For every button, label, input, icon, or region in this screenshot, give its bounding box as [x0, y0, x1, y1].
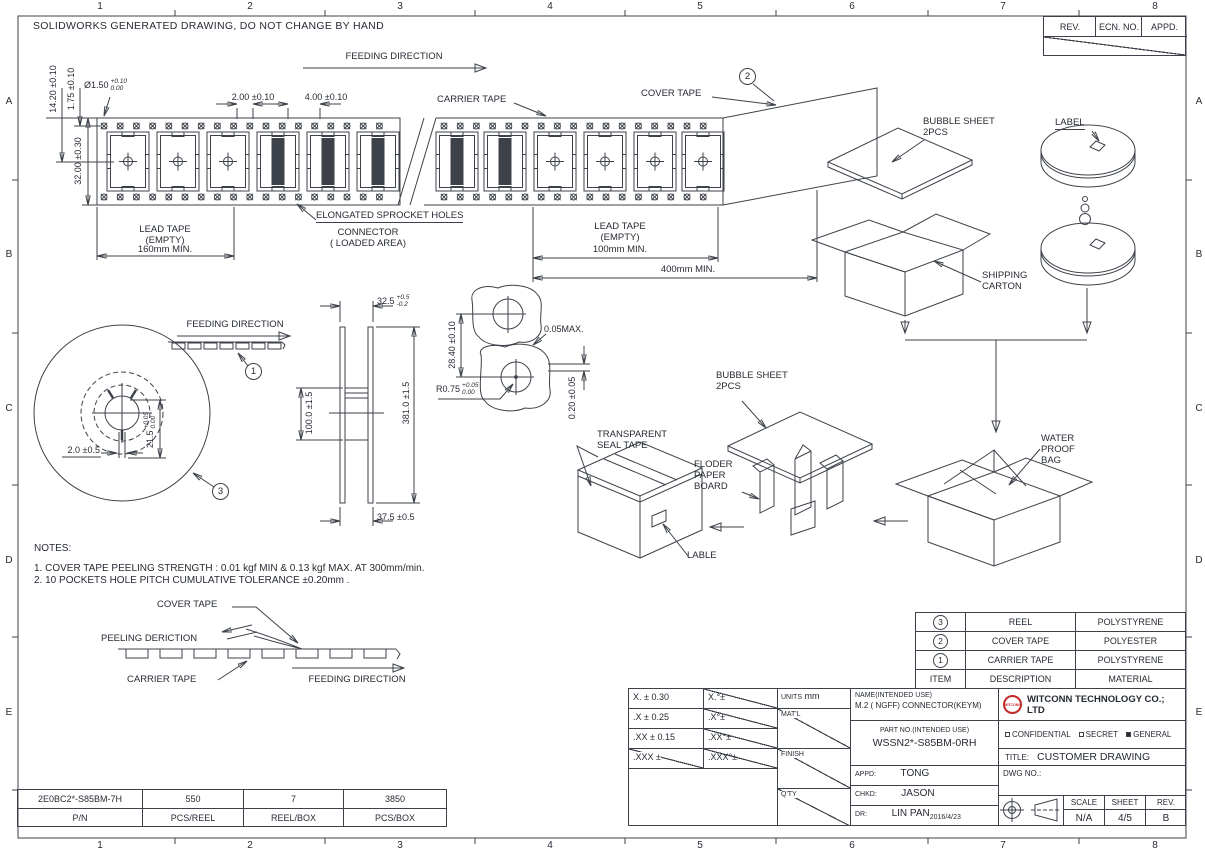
pcs-box-label: PCS/BOX: [344, 809, 446, 826]
floder-paper-board-label: FLODER PAPER BOARD: [694, 459, 733, 492]
grid-label: 2: [243, 1, 257, 12]
ecn-header: ECN. NO.: [1095, 17, 1142, 37]
note-1: 1. COVER TAPE PEELING STRENGTH : 0.01 kg…: [34, 563, 425, 574]
tol-row-lin: .XXX ±: [629, 749, 704, 769]
reel-label-label: LABEL: [1055, 117, 1085, 130]
dim-hub-main: 21.5: [145, 430, 155, 448]
dim-gap: 0.05MAX.: [544, 324, 584, 334]
note-2: 2. 10 POCKETS HOLE PITCH CUMULATIVE TOLE…: [34, 575, 350, 586]
sheet-label: SHEET: [1105, 796, 1146, 810]
confidential-option: CONFIDENTIAL: [1005, 730, 1071, 739]
grid-label: E: [2, 707, 16, 718]
shipping-carton-label: SHIPPING CARTON: [982, 270, 1027, 292]
tol-row-lin: .XX ± 0.15: [629, 729, 704, 749]
lead-right-min: 100mm MIN.: [565, 244, 675, 255]
grid-label: D: [2, 555, 16, 566]
dim-reel-width: 37.5 ±0.5: [377, 512, 414, 522]
grid-label: A: [1192, 96, 1205, 107]
grid-label: 7: [996, 840, 1010, 851]
appd-header: APPD.: [1141, 17, 1187, 37]
material-row-mat: POLYSTYRENE: [1076, 613, 1185, 632]
lead-tape-left-label: LEAD TAPE (EMPTY): [110, 224, 220, 246]
confidential-checkbox: [1005, 732, 1010, 737]
dim-hole-dia-main: Ø1.50: [84, 80, 109, 90]
lable-label: LABLE: [687, 550, 717, 561]
dim-slot: 2.0 ±0.5: [58, 445, 100, 455]
grid-label: 5: [693, 1, 707, 12]
dim-pocket-pitch: 4.00 ±0.10: [292, 92, 360, 102]
connector-loaded-area: CONNECTOR ( LOADED AREA): [313, 227, 423, 249]
matl-cell: MAT'L: [778, 709, 851, 749]
grid-label: C: [2, 403, 16, 414]
grid-label: C: [1192, 403, 1205, 414]
feeding-direction-reel: FEEDING DIRECTION: [170, 319, 300, 330]
grid-label: 6: [845, 840, 859, 851]
title-value: CUSTOMER DRAWING: [1037, 751, 1150, 763]
dim-reel-diameter: 381.0 ±1.5: [401, 368, 411, 438]
tol-row-lin: X. ± 0.30: [629, 689, 704, 709]
grid-label: 5: [693, 840, 707, 851]
tol-row-lin: .X ± 0.25: [629, 709, 704, 729]
material-header-item: ITEM: [916, 670, 966, 688]
grid-label: B: [1192, 249, 1205, 260]
title-block: X. ± 0.30 X.°± .X ± 0.25 .X°± .XX ± 0.15…: [628, 688, 1186, 826]
grid-label: 1: [93, 1, 107, 12]
company-cell: WITCONN WITCONN TECHNOLOGY CO.; LTD: [999, 689, 1186, 721]
name-cell: NAME(INTENDED USE) M.2 ( NGFF) CONNECTOR…: [851, 689, 999, 721]
dim-hub-tol: +0.050.00: [143, 412, 157, 428]
dwg-cell: DWG NO.:: [999, 766, 1186, 796]
grid-label: 1: [93, 840, 107, 851]
grid-label: B: [2, 249, 16, 260]
dim-hub-dia: 100.0 ±1.5: [304, 378, 314, 448]
pn-label: P/N: [18, 809, 143, 826]
feeding-direction-top: FEEDING DIRECTION: [324, 51, 464, 62]
dim-pocket-center: 14.20 ±0.10: [48, 54, 58, 124]
grid-label: 7: [996, 1, 1010, 12]
grid-label: 3: [393, 840, 407, 851]
drawing-sheet: SOLIDWORKS GENERATED DRAWING, DO NOT CHA…: [0, 0, 1205, 852]
grid-label: 4: [543, 1, 557, 12]
dr-cell: DR: LIN PAN2016/4/23: [851, 806, 999, 826]
pn-table: 2E0BC2*-S85BM-7H 550 7 3850 P/N PCS/REEL…: [17, 789, 447, 827]
dim-hole-dia-tol: +0.100.00: [111, 78, 127, 92]
title-cell: TITLE: CUSTOMER DRAWING: [999, 749, 1186, 766]
scale-value: N/A: [1064, 810, 1105, 826]
rev-label: REV.: [1146, 796, 1186, 810]
dim-hole-pitch: 2.00 ±0.10: [219, 92, 287, 102]
material-row-mat: POLYSTYRENE: [1076, 651, 1185, 670]
dim-radius: R0.75 +0.050.00: [436, 382, 478, 396]
peel-carrier-tape-label: CARRIER TAPE: [127, 674, 196, 685]
material-table: 3 REEL POLYSTYRENE 2 COVER TAPE POLYESTE…: [915, 612, 1186, 689]
tol-blank: [629, 769, 778, 826]
tol-row-ang: X.°±: [704, 689, 778, 709]
dim-flange-gap: 32.5 +0.5-0.2: [377, 294, 409, 308]
solidworks-note: SOLIDWORKS GENERATED DRAWING, DO NOT CHA…: [33, 21, 384, 32]
tol-row-ang: .X°±: [704, 709, 778, 729]
dim-flange-gap-tol: +0.5-0.2: [397, 294, 410, 308]
material-row-desc: REEL: [966, 613, 1076, 632]
secret-option: SECRET: [1079, 730, 1118, 739]
appd-cell: APPD: TONG: [851, 766, 999, 786]
dwg-label: DWG NO.:: [1003, 769, 1041, 778]
dim-tape-width: 32.00 ±0.30: [73, 126, 83, 196]
grid-label: D: [1192, 555, 1205, 566]
pcs-box-value: 3850: [344, 790, 446, 809]
dim-standoff: 0.20 ±0.05: [567, 363, 577, 433]
lead-left-min: 160mm MIN.: [110, 244, 220, 255]
rev-table: REV. ECN. NO. APPD.: [1043, 16, 1186, 56]
pn-value: 2E0BC2*-S85BM-7H: [18, 790, 143, 809]
pcs-reel-value: 550: [143, 790, 244, 809]
dr-value: LIN PAN: [892, 808, 930, 819]
units-cell: UNITS mm: [778, 689, 851, 709]
secret-checkbox: [1079, 732, 1084, 737]
tol-row-ang: .XXX°±: [704, 749, 778, 769]
reel-box-value: 7: [244, 790, 344, 809]
elongated-sprocket-holes-label: ELONGATED SPROCKET HOLES: [316, 210, 463, 223]
material-row-item: 1: [916, 651, 966, 670]
dr-date: 2016/4/23: [930, 814, 961, 821]
cover-tape-label: COVER TAPE: [641, 88, 701, 99]
feeding-direction-peel: FEEDING DIRECTION: [292, 674, 422, 685]
dim-hole-edge: 1.75 ±0.10: [66, 54, 76, 124]
balloon-tape: 1: [245, 363, 262, 380]
bubble-sheet-mid-label: BUBBLE SHEET 2PCS: [716, 370, 788, 392]
tol-row-ang: .XX°±: [704, 729, 778, 749]
grid-label: 8: [1148, 840, 1162, 851]
notes-title: NOTES:: [34, 543, 71, 554]
grid-label: 3: [393, 1, 407, 12]
water-proof-bag-label: WATER PROOF BAG: [1041, 433, 1075, 466]
material-row-desc: CARRIER TAPE: [966, 651, 1076, 670]
third-angle-projection-icon: [999, 796, 1063, 825]
carrier-tape-label: CARRIER TAPE: [437, 94, 506, 105]
grid-label: 2: [243, 840, 257, 851]
general-checkbox: [1126, 732, 1131, 737]
sheet-value: 4/5: [1105, 810, 1146, 826]
chkd-value: JASON: [901, 788, 934, 799]
company-name: WITCONN TECHNOLOGY CO.; LTD: [1027, 694, 1182, 716]
balloon-cover-tape: 2: [739, 68, 756, 85]
dim-hub: 21.5 +0.050.00: [143, 395, 157, 465]
name-value: M.2 ( NGFF) CONNECTOR(KEYM): [855, 701, 994, 710]
dim-hole-span: 28.40 ±0.10: [447, 310, 457, 380]
total-min: 400mm MIN.: [648, 264, 728, 275]
peel-cover-tape-label: COVER TAPE: [157, 599, 217, 610]
bubble-sheet-top-label: BUBBLE SHEET 2PCS: [923, 116, 995, 138]
classification-cell: CONFIDENTIAL SECRET GENERAL: [999, 721, 1186, 749]
part-label: PART NO.(INTENDED USE): [851, 727, 998, 734]
appd-value: TONG: [901, 768, 930, 779]
dim-flange-gap-main: 32.5: [377, 296, 395, 306]
part-value: WSSN2*-S85BM-0RH: [851, 737, 998, 749]
lead-tape-right-label: LEAD TAPE (EMPTY): [565, 221, 675, 243]
peeling-direction-label: PEELING DERICTION: [101, 633, 197, 644]
material-header-desc: DESCRIPTION: [966, 670, 1076, 688]
witconn-logo: WITCONN: [1003, 695, 1022, 714]
balloon-reel: 3: [212, 483, 229, 500]
general-option: GENERAL: [1126, 730, 1171, 739]
material-row-item: 2: [916, 632, 966, 651]
rev-header: REV.: [1044, 17, 1096, 37]
grid-label: 4: [543, 840, 557, 851]
chkd-cell: CHKD: JASON: [851, 786, 999, 806]
reel-box-label: REEL/BOX: [244, 809, 344, 826]
transparent-seal-tape-label: TRANSPARENT SEAL TAPE: [597, 429, 667, 451]
material-row-mat: POLYESTER: [1076, 632, 1185, 651]
grid-label: 8: [1148, 1, 1162, 12]
pcs-reel-label: PCS/REEL: [143, 809, 244, 826]
finish-cell: FINISH: [778, 749, 851, 789]
scale-label: SCALE: [1064, 796, 1105, 810]
grid-label: A: [2, 96, 16, 107]
qty-cell: Q'TY: [778, 789, 851, 826]
dim-radius-tol: +0.050.00: [462, 382, 478, 396]
material-header-mat: MATERIAL: [1076, 670, 1185, 688]
rev-value: B: [1146, 810, 1186, 826]
grid-label: E: [1192, 707, 1205, 718]
material-row-desc: COVER TAPE: [966, 632, 1076, 651]
part-cell: PART NO.(INTENDED USE) WSSN2*-S85BM-0RH: [851, 721, 999, 766]
material-row-item: 3: [916, 613, 966, 632]
grid-label: 6: [845, 1, 859, 12]
dim-radius-main: R0.75: [436, 384, 460, 394]
rev-empty-row: [1044, 37, 1185, 55]
projection-cell: [999, 796, 1064, 826]
dim-hole-dia: Ø1.50 +0.100.00: [84, 78, 127, 92]
title-label: TITLE:: [1005, 753, 1029, 762]
name-label: NAME(INTENDED USE): [855, 692, 994, 699]
